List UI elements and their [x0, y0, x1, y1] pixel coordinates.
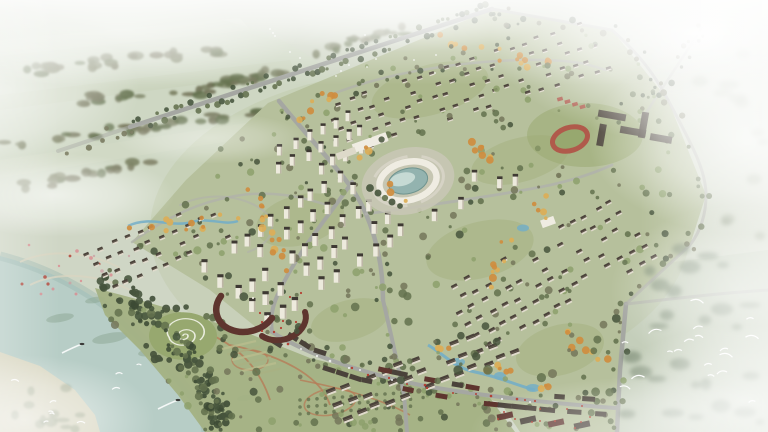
aerial-masterplan-render: [0, 0, 768, 432]
